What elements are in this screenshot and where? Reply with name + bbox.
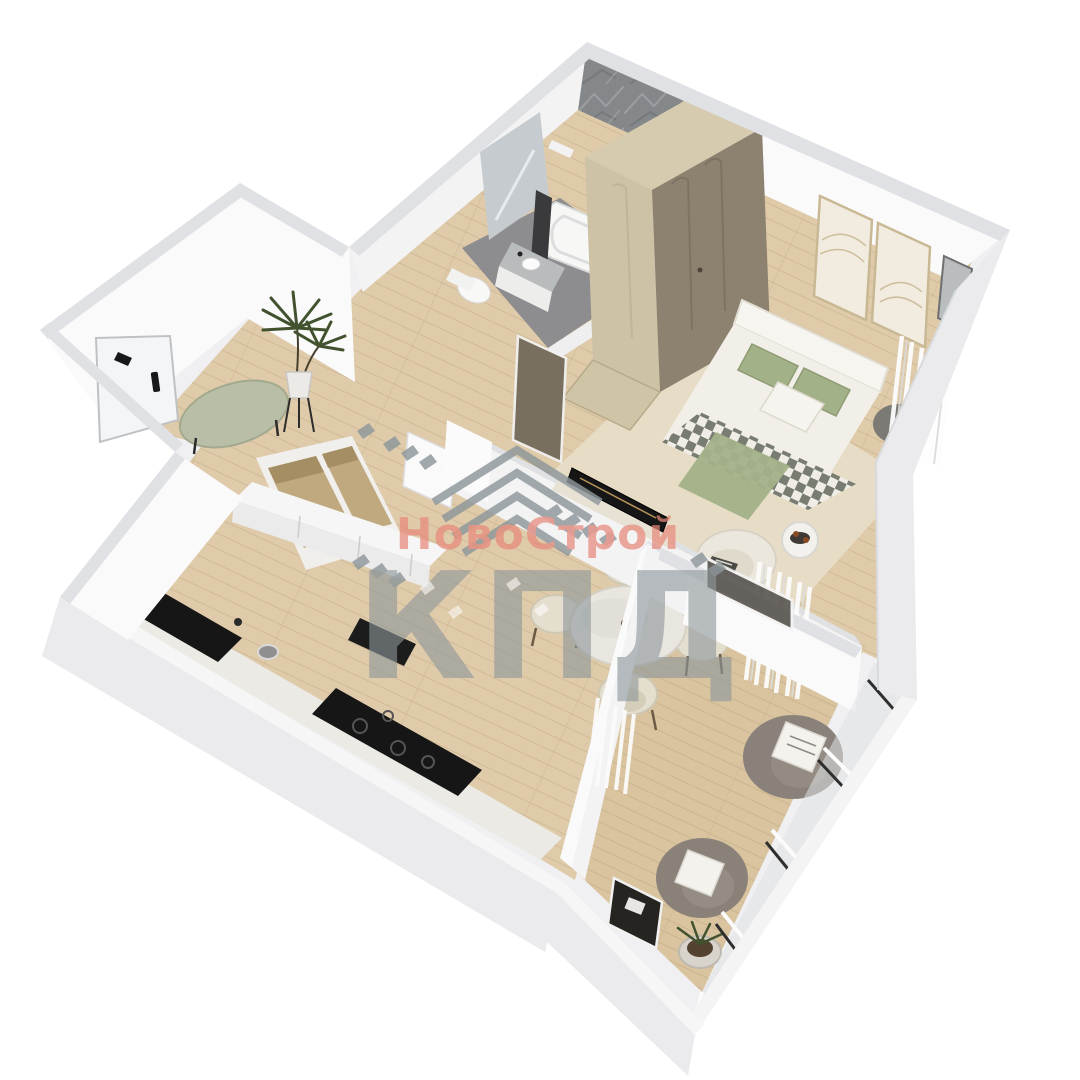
plant-pot xyxy=(286,372,312,398)
faucet-icon xyxy=(518,252,523,257)
decanter-icon xyxy=(793,531,799,537)
mirror-closet-column xyxy=(513,336,566,462)
living-east-band xyxy=(876,462,917,700)
floorplan-render: НовоСтрой КПД xyxy=(0,0,1080,1080)
pot-icon xyxy=(258,645,278,659)
watermark-abbrev: КПД xyxy=(356,541,745,713)
wardrobe-knob-icon xyxy=(698,268,703,273)
vanity-sink xyxy=(522,258,540,270)
decanter2-icon xyxy=(803,537,809,543)
sink-faucet-icon xyxy=(234,618,242,626)
wardrobe-side-light xyxy=(585,157,660,392)
apartment-3d-plan: НовоСтрой КПД xyxy=(0,0,1080,1080)
